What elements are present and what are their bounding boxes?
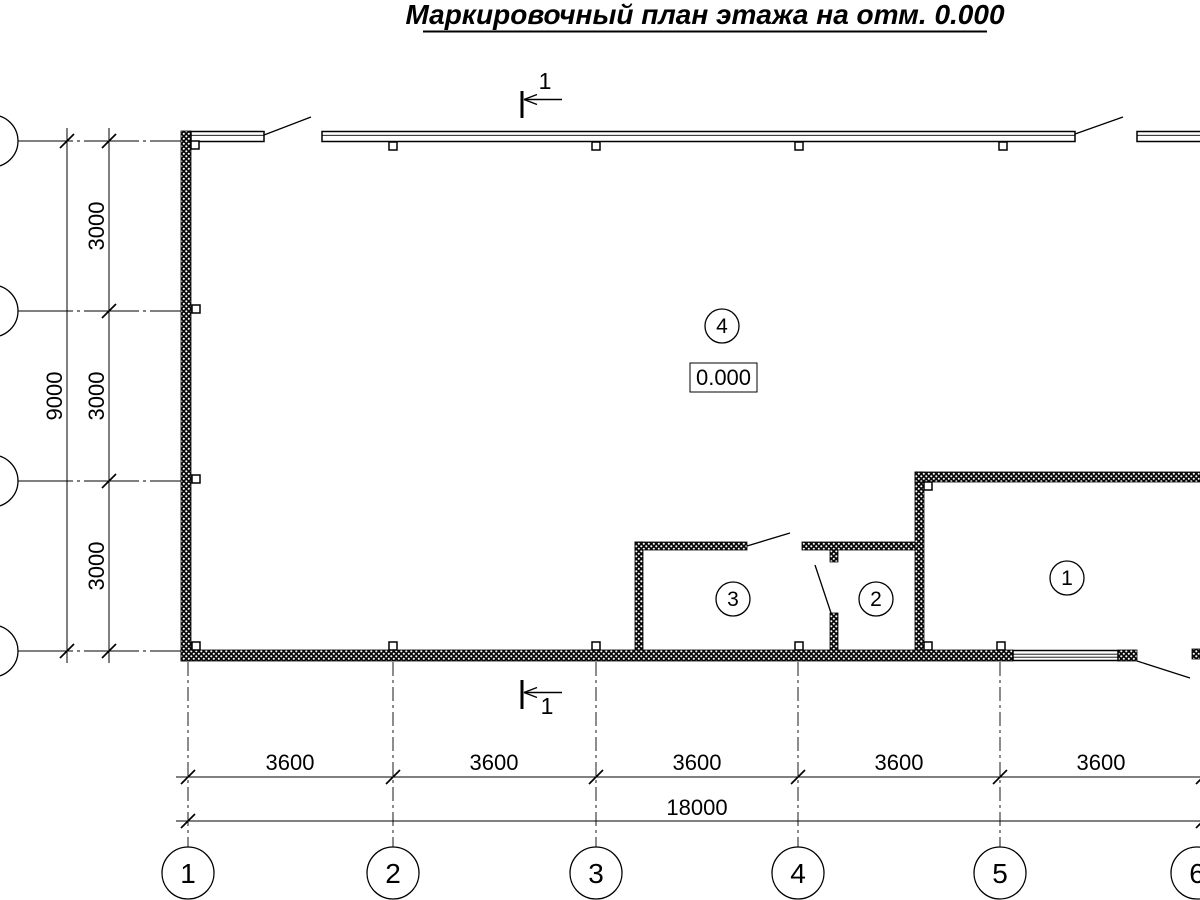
room1-wall-top bbox=[915, 472, 1200, 482]
column-square bbox=[924, 642, 932, 650]
elevation-mark: 0.000 bbox=[690, 363, 757, 392]
door-leaf-bottom-right bbox=[1137, 661, 1190, 678]
column-square bbox=[924, 482, 932, 490]
dim-bottom-segment-4: 3600 bbox=[875, 750, 924, 775]
door-leaf-top-right bbox=[1075, 117, 1123, 134]
column-square bbox=[795, 642, 803, 650]
column-axes: 1 2 3 4 5 6 bbox=[162, 847, 1200, 899]
floor-plan-canvas: Маркировочный план этажа на отм. 0.000 3… bbox=[0, 0, 1200, 900]
dim-left-segment-1: 3000 bbox=[84, 202, 109, 251]
column-square bbox=[592, 642, 600, 650]
column-axis-label-4: 4 bbox=[790, 858, 806, 889]
column-square bbox=[192, 642, 200, 650]
room-3-number: 3 bbox=[727, 588, 739, 611]
section-label-bottom: 1 bbox=[541, 693, 554, 719]
elevation-value: 0.000 bbox=[696, 365, 751, 390]
dim-left-segment-2: 3000 bbox=[84, 372, 109, 421]
row-axis-circle-1 bbox=[0, 115, 18, 167]
room1-room2-divider-wall bbox=[915, 472, 924, 650]
dim-bottom-total: 18000 bbox=[666, 795, 727, 820]
left-dimension-block: 3000 3000 3000 9000 bbox=[42, 128, 116, 663]
room-1-number: 1 bbox=[1061, 567, 1073, 590]
column-axis-label-5: 5 bbox=[992, 858, 1008, 889]
top-window-band-1 bbox=[191, 132, 264, 142]
column-axis-label-3: 3 bbox=[588, 858, 604, 889]
room2-wall-stub-lower bbox=[830, 613, 838, 650]
bottom-dimension-block: 3600 3600 3600 3600 3600 18000 bbox=[176, 750, 1200, 828]
dim-bottom-segment-3: 3600 bbox=[673, 750, 722, 775]
dim-left-segment-3: 3000 bbox=[84, 542, 109, 591]
dim-bottom-segment-1: 3600 bbox=[266, 750, 315, 775]
dim-left-total: 9000 bbox=[42, 372, 67, 421]
room-4-number: 4 bbox=[716, 315, 728, 338]
column-axis-label-6: 6 bbox=[1189, 858, 1200, 889]
mullion-squares bbox=[191, 141, 1007, 650]
top-window-band-2 bbox=[322, 132, 1075, 142]
column-square bbox=[592, 142, 600, 150]
room3-wall-top bbox=[635, 542, 747, 550]
door-leaf-top-left bbox=[264, 117, 311, 135]
row-axis-circle-2 bbox=[0, 285, 18, 337]
section-label-top: 1 bbox=[539, 68, 552, 94]
page-title: Маркировочный план этажа на отм. 0.000 bbox=[405, 0, 1004, 30]
room-2-number: 2 bbox=[870, 588, 882, 611]
title-block: Маркировочный план этажа на отм. 0.000 bbox=[405, 0, 1004, 32]
column-square bbox=[389, 642, 397, 650]
room2-wall-stub-upper bbox=[830, 550, 838, 562]
dim-bottom-segment-5: 3600 bbox=[1077, 750, 1126, 775]
section-arrowhead bbox=[524, 100, 537, 105]
dim-bottom-segment-2: 3600 bbox=[470, 750, 519, 775]
column-square bbox=[191, 141, 199, 149]
door-leaf-room2 bbox=[815, 565, 831, 613]
section-arrowhead bbox=[524, 693, 537, 698]
section-arrowhead bbox=[524, 688, 537, 693]
column-axis-label-2: 2 bbox=[385, 858, 401, 889]
room3-wall-left bbox=[635, 542, 643, 650]
column-square bbox=[997, 642, 1005, 650]
exterior-wall-bottom-pier bbox=[1118, 650, 1137, 661]
section-arrowhead bbox=[524, 95, 537, 100]
column-square bbox=[389, 142, 397, 150]
column-square bbox=[192, 475, 200, 483]
room-labels: 4 3 2 1 bbox=[705, 309, 1084, 616]
exterior-wall-left bbox=[181, 131, 191, 661]
bottom-window bbox=[1013, 651, 1118, 661]
column-square bbox=[192, 305, 200, 313]
exterior-wall-bottom-edge bbox=[1192, 649, 1200, 659]
column-axis-label-1: 1 bbox=[180, 858, 196, 889]
row-axis-circle-3 bbox=[0, 455, 18, 507]
window-bands bbox=[191, 132, 1200, 661]
room2-wall-top bbox=[802, 542, 915, 550]
column-square bbox=[795, 142, 803, 150]
section-marks: 1 1 bbox=[522, 68, 562, 719]
column-square bbox=[999, 142, 1007, 150]
row-axis-circle-4 bbox=[0, 625, 18, 677]
door-leaf-room3 bbox=[747, 533, 790, 546]
exterior-wall-bottom bbox=[181, 650, 1013, 661]
walls bbox=[181, 131, 1200, 661]
top-window-band-3 bbox=[1137, 132, 1200, 142]
